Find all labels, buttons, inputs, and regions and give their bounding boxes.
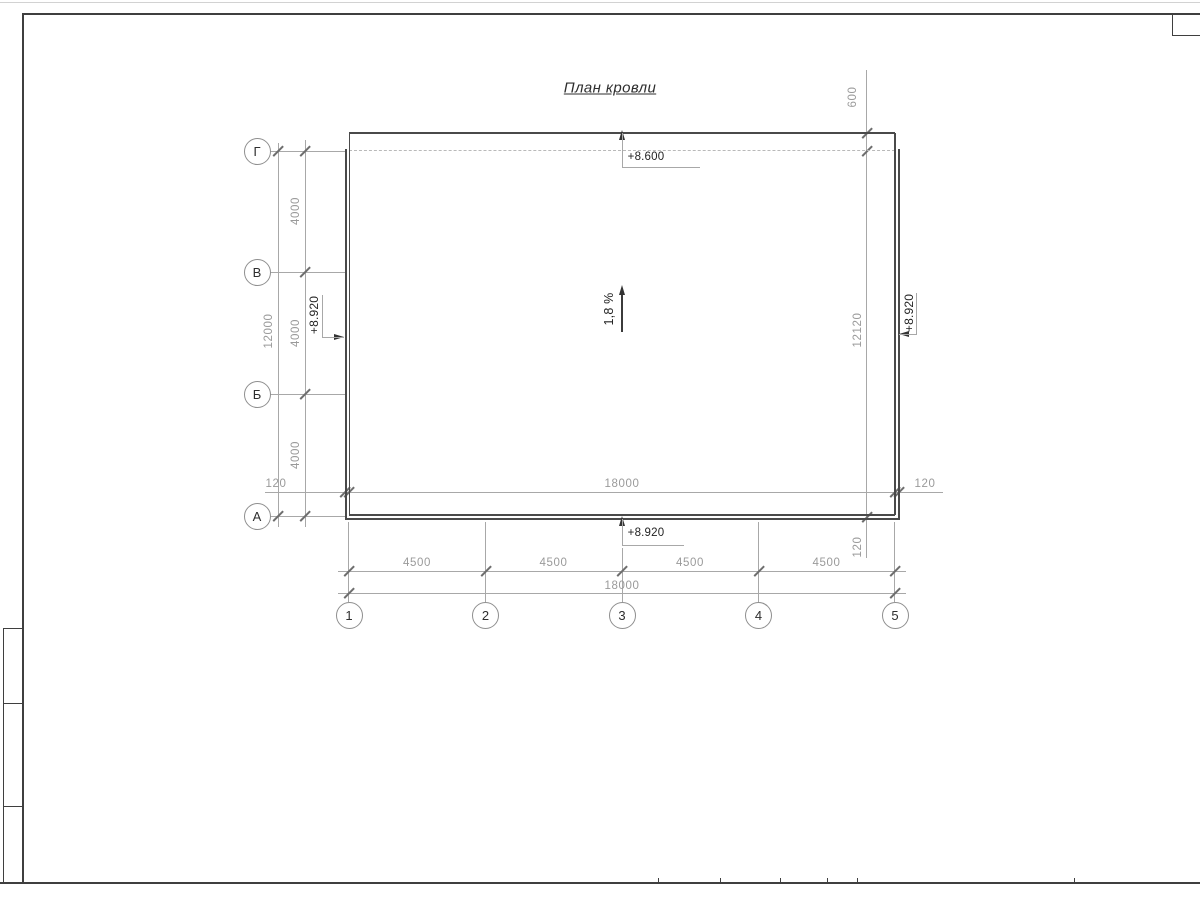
elevation-stem-left <box>322 337 344 338</box>
axis-row-label: Б <box>253 387 262 402</box>
slope-arrow-stem <box>621 289 622 332</box>
axis-circle-col-1: 1 <box>336 602 363 629</box>
axis-circle-col-3: 3 <box>609 602 636 629</box>
title-block-divider-stub <box>720 878 721 882</box>
corner-stamp-box-bottom <box>1172 35 1200 36</box>
frame-border-left <box>22 13 24 883</box>
axis-circle-col-2: 2 <box>472 602 499 629</box>
axis-circle-row-v: В <box>244 259 271 286</box>
corner-stamp-box-left <box>1172 13 1173 36</box>
drawing-title: План кровли <box>564 80 656 97</box>
dim-line-right-vertical <box>866 70 867 558</box>
title-block-divider-stub <box>780 878 781 882</box>
axis-extension-3 <box>622 548 623 602</box>
margin-table-row-line <box>3 703 22 704</box>
dim-label-left-bay-3: 4000 <box>290 441 302 469</box>
dim-label-eave-bottom: 120 <box>852 537 864 558</box>
axis-circle-row-a: А <box>244 503 271 530</box>
dim-line-left-bays <box>305 140 306 527</box>
dim-label-bottom-bay-1: 4500 <box>403 557 431 569</box>
paper-edge-top <box>0 2 1200 3</box>
frame-border-top <box>22 13 1200 15</box>
axis-row-label: В <box>253 265 262 280</box>
roof-edge-left <box>345 149 347 519</box>
margin-table-row-line <box>3 806 22 807</box>
axis-col-label: 4 <box>755 608 762 623</box>
axis-leader-row-v <box>270 272 345 273</box>
dim-label-bottom-total: 18000 <box>605 580 640 592</box>
axis-extension-1 <box>348 522 349 602</box>
elevation-label-eave-bottom: +8.920 <box>628 527 665 539</box>
elevation-label-roof-top: +8.600 <box>628 151 665 163</box>
axis-extension-2 <box>485 522 486 602</box>
title-block-divider-stub <box>827 878 828 882</box>
dim-label-left-bay-1: 4000 <box>290 197 302 225</box>
axis-extension-4 <box>758 522 759 602</box>
axis-col-label: 2 <box>482 608 489 623</box>
elevation-label-eave-right: +8.920 <box>902 294 916 332</box>
dim-line-left-total <box>278 143 279 527</box>
title-block-top-line <box>0 882 1200 884</box>
title-block-divider-stub <box>857 878 858 882</box>
wall-line-left <box>349 133 351 515</box>
wall-line-right <box>894 133 896 515</box>
title-block-divider-stub <box>658 878 659 882</box>
title-block-divider-stub <box>1074 878 1075 882</box>
slope-label: 1,8 % <box>602 293 616 326</box>
elevation-shelf-top <box>622 167 700 168</box>
axis-col-label: 1 <box>345 608 352 623</box>
dim-label-bottom-bay-2: 4500 <box>540 557 568 569</box>
axis-circle-col-5: 5 <box>882 602 909 629</box>
dim-label-left-bay-2: 4000 <box>290 319 302 347</box>
dim-label-bottom-bay-3: 4500 <box>676 557 704 569</box>
axis-row-label: Г <box>253 144 260 159</box>
axis-leader-row-a <box>270 516 345 517</box>
axis-circle-row-g: Г <box>244 138 271 165</box>
margin-table-row-line <box>3 628 22 629</box>
dim-tick <box>862 146 873 157</box>
elevation-stem-right <box>899 334 917 335</box>
dim-label-eave-right: 120 <box>915 478 936 490</box>
axis-row-label: А <box>253 509 262 524</box>
axis-col-label: 5 <box>891 608 898 623</box>
axis-col-label: 3 <box>618 608 625 623</box>
elevation-shelf-left <box>322 295 323 337</box>
dim-label-right-total: 12120 <box>852 313 864 348</box>
axis-leader-row-b <box>270 394 345 395</box>
elevation-shelf-right <box>916 293 917 334</box>
drawing-sheet: 4000 4000 4000 12000 120 18000 120 4500 … <box>0 0 1200 900</box>
axis-extension-5 <box>894 522 895 602</box>
axis-circle-col-4: 4 <box>745 602 772 629</box>
elevation-stem-top <box>622 133 623 167</box>
elevation-label-eave-left: +8.920 <box>307 296 321 334</box>
elevation-stem-bottom <box>622 519 623 546</box>
dim-label-left-total: 12000 <box>263 314 275 349</box>
margin-table-left-edge <box>3 628 4 882</box>
axis-leader-row-g <box>270 151 345 152</box>
dim-line-inner-width <box>265 492 943 493</box>
dim-label-eave-left: 120 <box>266 478 287 490</box>
dim-label-inner-width: 18000 <box>605 478 640 490</box>
dim-label-eave-top: 600 <box>847 87 859 108</box>
dim-label-bottom-bay-4: 4500 <box>813 557 841 569</box>
elevation-shelf-bottom <box>622 545 684 546</box>
axis-circle-row-b: Б <box>244 381 271 408</box>
slope-arrow-head <box>619 285 625 295</box>
